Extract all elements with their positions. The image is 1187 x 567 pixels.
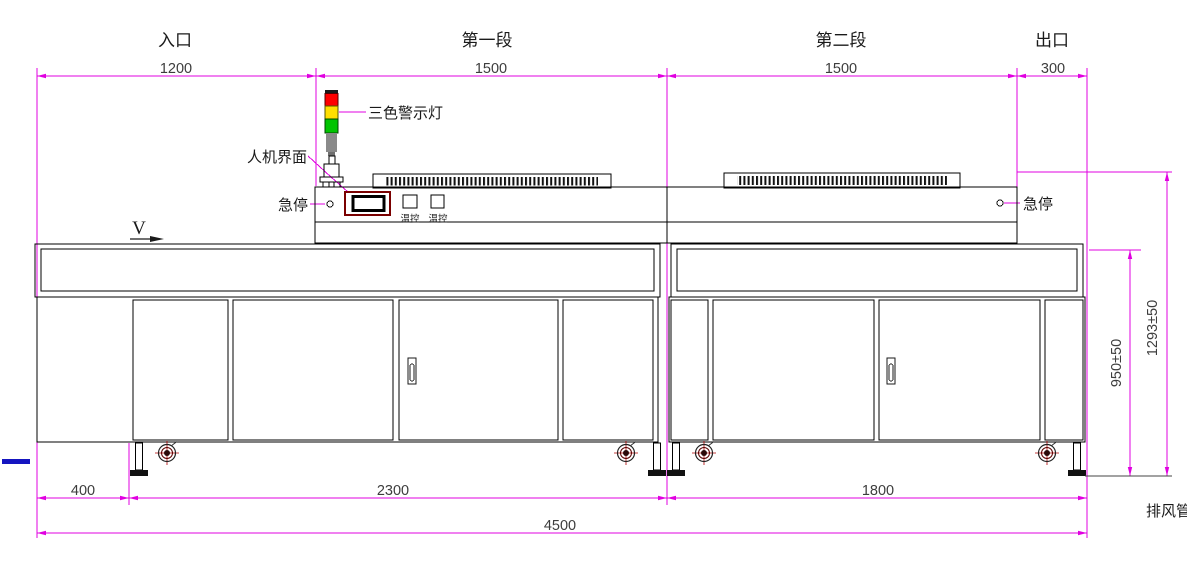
dim-2300: 2300 (377, 483, 409, 499)
hmi-screen (353, 197, 384, 211)
caster-wheel (1035, 441, 1059, 465)
caster-wheel (614, 441, 638, 465)
estop-button-right (997, 200, 1003, 206)
temp-controller-right (431, 195, 444, 208)
temp-controller-left (403, 195, 417, 208)
estop-button-left (327, 201, 333, 207)
speed-symbol-label: V (132, 218, 146, 239)
caster-wheel (692, 441, 716, 465)
dim-1500-b: 1500 (825, 61, 857, 77)
dim-1293: 1293±50 (1145, 300, 1161, 356)
light-green-segment (325, 119, 338, 133)
dim-300: 300 (1041, 61, 1065, 77)
light-cap (325, 90, 338, 94)
cabinet-right-module (669, 297, 1085, 442)
door-handle (408, 358, 416, 384)
section-label-stage2: 第二段 (816, 31, 867, 50)
conveyor-right-inner (677, 249, 1077, 291)
cabinet-door (233, 300, 393, 440)
leveling-foot (1068, 443, 1086, 476)
cabinet-door (399, 300, 558, 440)
temp-ctrl-label-right: 温控 (428, 213, 448, 225)
cabinet-door (713, 300, 874, 440)
estop-label-left: 急停 (278, 197, 308, 214)
dimension-lines (37, 68, 1172, 538)
light-joint (328, 152, 335, 156)
section-label-stage1: 第一段 (462, 31, 513, 50)
temp-ctrl-label-left: 温控 (400, 213, 420, 225)
light-red-segment (325, 94, 338, 107)
cabinet-door (879, 300, 1040, 440)
leveling-foot (667, 443, 685, 476)
machine-body (35, 173, 1085, 442)
control-panel (327, 192, 1003, 215)
section-label-entrance: 入口 (158, 31, 192, 50)
dim-400: 400 (71, 483, 95, 499)
warning-light-tower (320, 90, 343, 187)
estop-label-right: 急停 (1023, 196, 1053, 213)
dim-1200: 1200 (160, 61, 192, 77)
light-mount-foot (323, 182, 329, 187)
dim-4500: 4500 (544, 518, 576, 534)
exhaust-duct-label: 排风管 (1146, 503, 1187, 520)
caster-wheel (155, 441, 179, 465)
leveling-foot (130, 443, 148, 476)
cabinet-door (1045, 300, 1083, 440)
cabinet-left-module (37, 297, 658, 442)
casters (155, 441, 1059, 465)
dim-1500-a: 1500 (475, 61, 507, 77)
cabinet-door (671, 300, 708, 440)
hmi-label: 人机界面 (247, 149, 307, 166)
conveyor-right-outer (671, 244, 1083, 297)
dim-950: 950±50 (1109, 339, 1125, 387)
cad-drawing-canvas: 入口 第一段 第二段 出口 1200 1500 1500 300 三色警示灯 人… (0, 0, 1187, 567)
vent-hatch-1 (386, 177, 598, 186)
section-label-exit: 出口 (1035, 31, 1069, 50)
dim-1800: 1800 (862, 483, 894, 499)
machine-drawing: 入口 第一段 第二段 出口 1200 1500 1500 300 三色警示灯 人… (0, 0, 1187, 567)
leveling-foot (648, 443, 666, 476)
oven-body (315, 187, 1017, 243)
conveyor-left-inner (41, 249, 654, 291)
light-mount-block (324, 164, 339, 177)
cabinet-door (133, 300, 228, 440)
blue-reference-mark (2, 459, 30, 464)
vent-hatch-2 (737, 176, 947, 185)
leveling-feet (130, 443, 1086, 476)
cabinet-door (563, 300, 653, 440)
door-handle (887, 358, 895, 384)
light-mount-stem (329, 156, 335, 164)
dimension-arrowheads (37, 74, 1169, 535)
light-yellow-segment (325, 106, 338, 119)
conveyor-left-outer (35, 244, 660, 297)
light-pole (326, 133, 337, 152)
warning-light-label: 三色警示灯 (368, 105, 443, 122)
